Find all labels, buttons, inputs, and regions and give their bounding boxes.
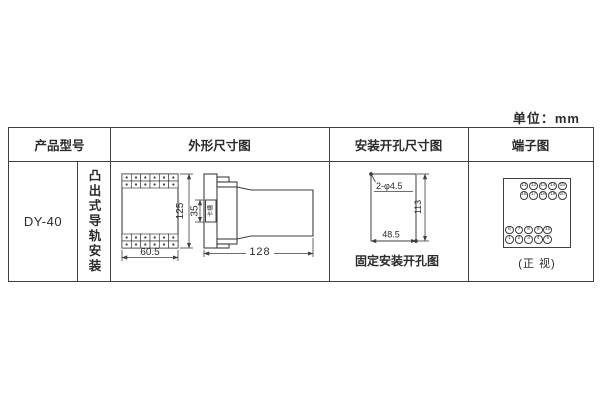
slot-name-label: 卡槽 xyxy=(207,205,215,217)
terminal-screw-dot xyxy=(154,183,156,185)
front-bottom-terminal-block xyxy=(122,234,178,248)
dimensions-table: 产品型号 外形尺寸图 安装开孔尺寸图 端子图 DY-40 凸出式导轨安装 60.… xyxy=(8,127,594,282)
terminal-screw-dot xyxy=(154,236,156,238)
terminal-screw-dot xyxy=(154,176,156,178)
terminal-screw-dot xyxy=(135,183,137,185)
terminal-screw-dot xyxy=(144,183,146,185)
terminal-screw-dot xyxy=(126,236,128,238)
terminal-screw-dot xyxy=(172,243,174,245)
terminal-number-circle: 14 xyxy=(548,182,557,191)
terminal-screw-dot xyxy=(172,183,174,185)
terminal-screw-dot xyxy=(163,236,165,238)
terminal-row: 12345 xyxy=(505,235,552,244)
terminal-row: 1617181920 xyxy=(520,191,567,200)
side-depth-label: 128 xyxy=(249,246,270,258)
hole-spec-label: 2-φ4.5 xyxy=(376,181,402,191)
terminal-number-circle: 13 xyxy=(539,182,548,191)
top-clip-step-1 xyxy=(217,177,229,182)
terminal-group-bottom: 67891012345 xyxy=(505,226,552,245)
front-width-label: 60.5 xyxy=(140,247,160,258)
bottom-clip-step-1 xyxy=(217,239,237,244)
terminal-screw-dot xyxy=(135,243,137,245)
terminal-screw-dot xyxy=(126,243,128,245)
terminal-screw-dot xyxy=(135,176,137,178)
terminal-screw-dot xyxy=(163,183,165,185)
hole-horizontal-label: 48.5 xyxy=(382,230,400,240)
terminal-number-circle: 19 xyxy=(548,191,557,200)
terminal-screw-dot xyxy=(144,236,146,238)
bottom-clip-step-2 xyxy=(217,244,229,248)
terminal-number-circle: 6 xyxy=(505,226,514,235)
hole-leader-line xyxy=(371,174,376,182)
terminal-screw-dot xyxy=(154,243,156,245)
front-height-label: 125 xyxy=(175,202,186,219)
terminal-number-circle: 12 xyxy=(529,182,538,191)
front-top-terminal-block xyxy=(122,174,178,188)
terminal-number-circle: 3 xyxy=(524,235,533,244)
terminal-number-circle: 7 xyxy=(515,226,524,235)
terminal-number-circle: 4 xyxy=(534,235,543,244)
terminal-row: 1112131415 xyxy=(520,182,567,191)
outline-dimension-drawing: 60.5 125 35 卡槽 128 xyxy=(110,161,329,281)
terminal-number-circle: 1 xyxy=(505,235,514,244)
mounting-caption: 固定安装开孔图 xyxy=(355,253,439,268)
terminal-diagram: 11121314151617181920 67891012345 (正 视) xyxy=(468,161,593,281)
terminal-screw-dot xyxy=(126,176,128,178)
terminal-number-circle: 10 xyxy=(543,226,552,235)
terminal-number-circle: 8 xyxy=(524,226,533,235)
header-mounting-holes: 安装开孔尺寸图 xyxy=(329,128,468,161)
terminal-row: 678910 xyxy=(505,226,552,235)
terminal-screw-dot xyxy=(126,183,128,185)
terminal-number-circle: 5 xyxy=(543,235,552,244)
side-body-outline xyxy=(237,187,313,239)
unit-label: 单位：mm xyxy=(513,108,580,127)
datasheet-page: 单位：mm 产品型号 外形尺寸图 安装开孔尺寸图 端子图 DY-40 凸出式导轨… xyxy=(0,0,600,400)
terminal-number-circle: 20 xyxy=(558,191,567,200)
terminal-number-circle: 2 xyxy=(515,235,524,244)
terminal-screw-dot xyxy=(144,176,146,178)
hole-vertical-label: 113 xyxy=(413,200,423,214)
terminal-number-circle: 18 xyxy=(539,191,548,200)
terminal-screw-dot xyxy=(163,176,165,178)
top-clip-step-2 xyxy=(217,182,237,187)
terminal-screw-dot xyxy=(163,243,165,245)
terminal-number-circle: 17 xyxy=(529,191,538,200)
terminal-number-circle: 15 xyxy=(558,182,567,191)
header-terminal-diagram: 端子图 xyxy=(468,128,593,161)
header-outline-dimensions: 外形尺寸图 xyxy=(110,128,329,161)
slot-height-label: 35 xyxy=(190,205,201,217)
terminal-screw-dot xyxy=(135,236,137,238)
product-model-value: DY-40 xyxy=(9,161,77,281)
terminal-group-top: 11121314151617181920 xyxy=(520,182,567,201)
mounting-hole-drawing: 2-φ4.5 113 48.5 固定安装开孔图 xyxy=(329,161,468,281)
terminal-number-circle: 11 xyxy=(520,182,529,191)
mount-type-vertical-label: 凸出式导轨安装 xyxy=(78,161,110,281)
terminal-number-circle: 16 xyxy=(520,191,529,200)
terminal-screw-dot xyxy=(172,236,174,238)
header-product-model: 产品型号 xyxy=(9,128,110,161)
terminal-number-circle: 9 xyxy=(534,226,543,235)
terminal-screw-dot xyxy=(172,176,174,178)
terminal-screw-dot xyxy=(144,243,146,245)
terminal-caption: (正 视) xyxy=(503,255,571,271)
